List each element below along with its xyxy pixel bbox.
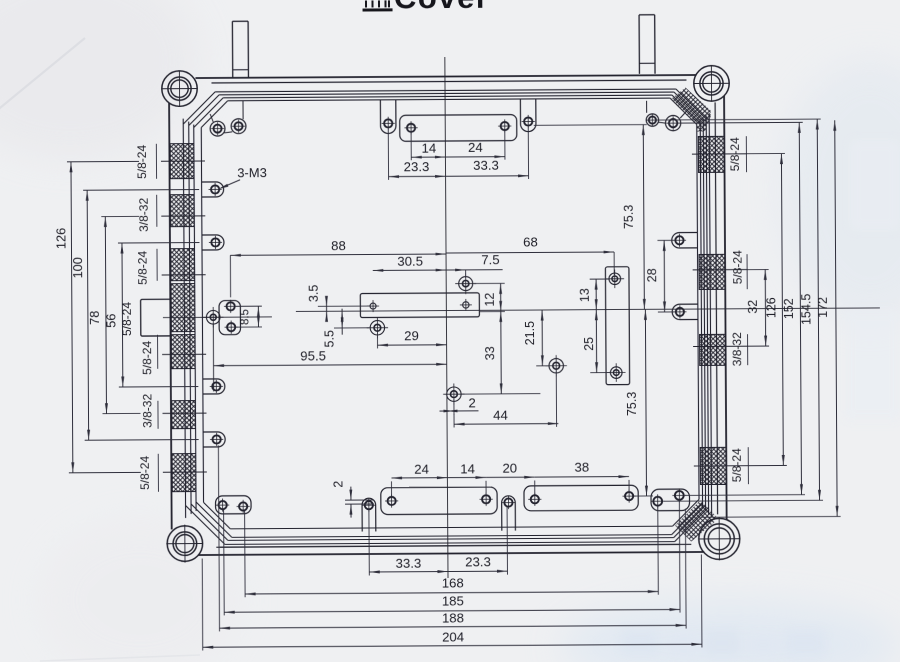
svg-text:13: 13	[578, 288, 592, 302]
svg-text:Cover: Cover	[394, 0, 488, 15]
svg-text:3/8-32: 3/8-32	[140, 393, 154, 427]
svg-text:8.5: 8.5	[239, 309, 251, 325]
svg-text:24: 24	[414, 462, 429, 477]
svg-text:126: 126	[53, 228, 68, 249]
svg-text:30.5: 30.5	[397, 254, 423, 269]
svg-text:172: 172	[816, 297, 830, 318]
svg-text:188: 188	[442, 610, 464, 625]
svg-text:33: 33	[483, 346, 497, 360]
svg-text:5/8-24: 5/8-24	[135, 145, 149, 179]
svg-text:23.3: 23.3	[404, 159, 430, 174]
svg-text:154.5: 154.5	[799, 294, 813, 325]
svg-text:29: 29	[404, 328, 419, 343]
svg-text:21.5: 21.5	[523, 321, 537, 345]
svg-text:5/8-24: 5/8-24	[120, 302, 134, 336]
svg-text:68: 68	[523, 234, 538, 249]
svg-text:5/8-24: 5/8-24	[140, 340, 154, 374]
svg-text:3/8-32: 3/8-32	[137, 197, 151, 231]
svg-text:5.5: 5.5	[322, 330, 336, 348]
svg-text:28: 28	[645, 268, 659, 282]
svg-text:25: 25	[582, 337, 596, 351]
svg-text:2: 2	[468, 395, 475, 410]
svg-text:168: 168	[442, 575, 464, 590]
svg-text:95.5: 95.5	[300, 348, 326, 363]
svg-text:14: 14	[422, 141, 437, 156]
svg-text:88: 88	[331, 238, 346, 253]
svg-text:2: 2	[331, 481, 345, 488]
svg-text:44: 44	[493, 408, 508, 423]
svg-text:24: 24	[468, 140, 483, 155]
svg-text:7.5: 7.5	[481, 252, 499, 267]
svg-text:33.3: 33.3	[396, 556, 422, 571]
svg-text:75.3: 75.3	[625, 392, 639, 416]
svg-text:33.3: 33.3	[473, 158, 499, 173]
svg-text:20: 20	[502, 461, 517, 476]
svg-text:5/8-24: 5/8-24	[730, 448, 744, 482]
svg-text:204: 204	[442, 629, 464, 644]
svg-text:23.3: 23.3	[465, 554, 491, 569]
svg-text:5/8-24: 5/8-24	[138, 455, 152, 489]
svg-text:3.5: 3.5	[307, 285, 321, 303]
svg-text:126: 126	[764, 297, 778, 318]
svg-text:38: 38	[574, 460, 589, 475]
svg-text:185: 185	[442, 593, 464, 608]
svg-text:5/8-24: 5/8-24	[731, 250, 745, 284]
svg-text:78: 78	[87, 311, 102, 325]
svg-text:100: 100	[70, 257, 85, 278]
svg-text:5/8-24: 5/8-24	[136, 250, 150, 284]
svg-text:3-M3: 3-M3	[237, 165, 267, 180]
svg-text:3/8-32: 3/8-32	[730, 332, 744, 366]
svg-text:32: 32	[746, 300, 760, 314]
svg-text:75.3: 75.3	[622, 205, 636, 229]
svg-text:14: 14	[460, 461, 475, 476]
svg-text:12: 12	[483, 293, 497, 307]
svg-text:56: 56	[103, 314, 118, 328]
svg-text:152: 152	[782, 298, 796, 319]
